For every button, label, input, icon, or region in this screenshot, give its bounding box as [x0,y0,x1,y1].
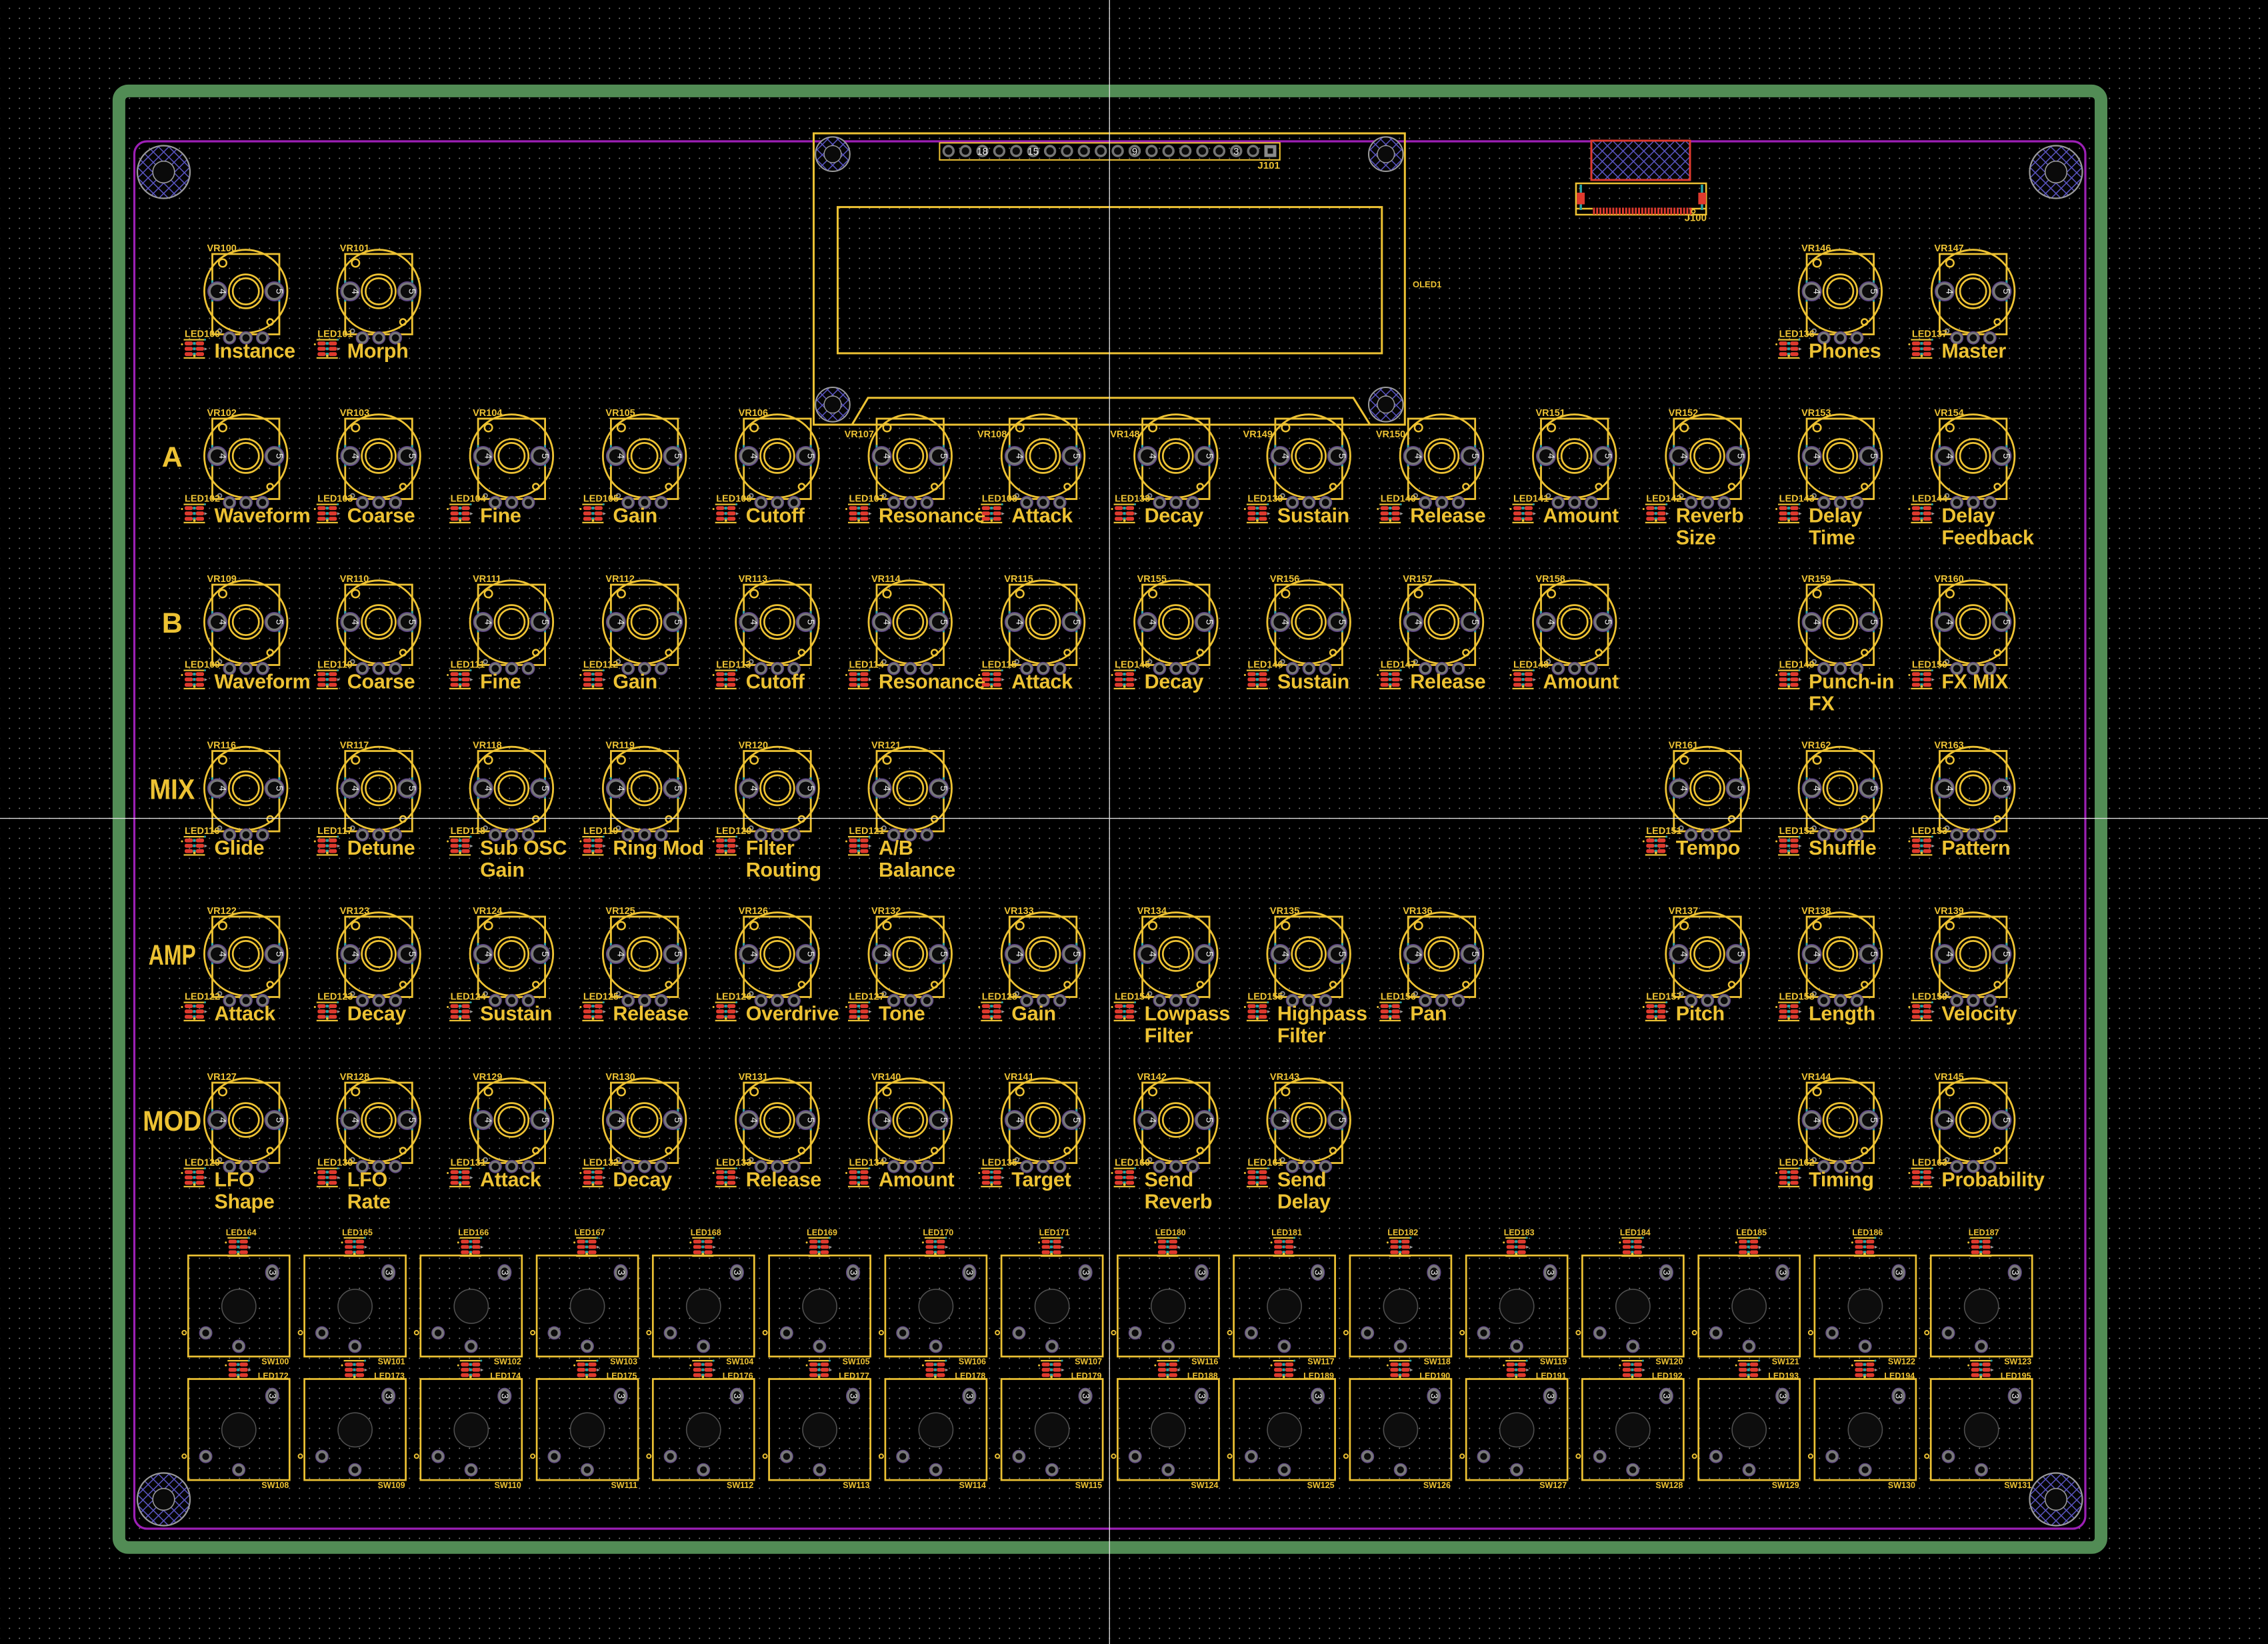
svg-text:VR157: VR157 [1403,574,1432,585]
svg-text:Timing: Timing [1809,1169,1874,1191]
svg-text:Coarse: Coarse [347,671,415,693]
svg-text:Decay: Decay [1145,671,1204,693]
svg-text:LED132: LED132 [583,1158,619,1169]
svg-text:Morph: Morph [347,340,409,363]
svg-text:LED185: LED185 [1736,1228,1767,1237]
svg-text:VR132: VR132 [871,906,901,917]
svg-text:LED142: LED142 [1646,494,1681,505]
svg-text:LED121: LED121 [849,826,885,837]
svg-text:Attack: Attack [215,1003,276,1025]
svg-text:LED118: LED118 [451,826,485,837]
svg-text:LED116: LED116 [185,826,219,837]
svg-text:Decay: Decay [347,1003,407,1025]
svg-text:Cutoff: Cutoff [746,505,805,527]
svg-text:J101: J101 [1257,160,1279,171]
svg-text:LED171: LED171 [1039,1228,1070,1237]
svg-text:SW113: SW113 [843,1481,869,1490]
svg-text:Attack: Attack [1011,671,1073,693]
svg-text:LED112: LED112 [583,660,618,671]
svg-text:VR108: VR108 [977,429,1007,440]
svg-text:VR143: VR143 [1270,1072,1299,1083]
svg-text:LED133: LED133 [716,1158,751,1169]
svg-text:VR138: VR138 [1801,906,1831,917]
svg-text:SW114: SW114 [959,1481,986,1490]
svg-text:LED155: LED155 [1247,992,1283,1003]
svg-text:Sustain: Sustain [1277,671,1349,693]
svg-text:SW103: SW103 [610,1357,637,1367]
svg-text:Pattern: Pattern [1941,837,2010,859]
svg-text:LED114: LED114 [849,660,884,671]
svg-text:VR113: VR113 [739,574,768,585]
svg-text:VR146: VR146 [1801,243,1831,254]
svg-text:LED153: LED153 [1912,826,1947,837]
svg-text:3: 3 [1233,146,1239,157]
svg-text:SW101: SW101 [378,1357,405,1367]
svg-text:Release: Release [613,1003,688,1025]
svg-text:Delay: Delay [1277,1191,1331,1213]
svg-text:LED115: LED115 [982,660,1017,671]
svg-text:Highpass: Highpass [1277,1003,1367,1025]
svg-text:Gain: Gain [613,671,657,693]
svg-text:LED124: LED124 [451,992,486,1003]
svg-text:Release: Release [1410,671,1485,693]
svg-text:LED128: LED128 [982,992,1017,1003]
svg-text:A/B: A/B [879,837,913,859]
svg-text:SW116: SW116 [1191,1357,1218,1367]
svg-text:VR158: VR158 [1536,574,1565,585]
svg-text:Cutoff: Cutoff [746,671,805,693]
svg-text:J100: J100 [1685,213,1707,224]
svg-text:SW105: SW105 [843,1357,870,1367]
svg-text:LED138: LED138 [1115,494,1150,505]
svg-text:SW130: SW130 [1888,1481,1915,1490]
svg-text:LED146: LED146 [1247,660,1283,671]
svg-text:VR101: VR101 [340,243,369,254]
svg-text:SW115: SW115 [1075,1481,1102,1490]
svg-text:VR147: VR147 [1934,243,1963,254]
svg-text:AMP: AMP [149,939,196,971]
svg-text:LED105: LED105 [583,494,619,505]
svg-text:LED123: LED123 [317,992,353,1003]
svg-text:Time: Time [1809,527,1855,549]
svg-text:VR142: VR142 [1137,1072,1167,1083]
svg-text:SW106: SW106 [959,1357,986,1367]
svg-text:Instance: Instance [215,340,295,363]
svg-text:Waveform: Waveform [215,505,311,527]
svg-text:Filter: Filter [746,837,795,859]
svg-text:LED113: LED113 [716,660,751,671]
svg-text:Filter: Filter [1277,1025,1326,1047]
svg-text:LED162: LED162 [1779,1158,1815,1169]
svg-text:LED154: LED154 [1115,992,1150,1003]
svg-text:VR152: VR152 [1669,408,1698,419]
svg-text:Attack: Attack [480,1169,541,1191]
svg-text:SW121: SW121 [1772,1357,1799,1367]
svg-text:VR125: VR125 [605,906,635,917]
svg-text:VR127: VR127 [207,1072,237,1083]
svg-text:SW117: SW117 [1307,1357,1334,1367]
svg-text:Detune: Detune [347,837,415,859]
svg-text:Master: Master [1941,340,2006,363]
svg-text:LED186: LED186 [1852,1228,1883,1237]
svg-text:LED165: LED165 [342,1228,373,1237]
svg-text:Coarse: Coarse [347,505,415,527]
svg-text:LED137: LED137 [1912,329,1947,340]
svg-text:SW127: SW127 [1539,1481,1567,1490]
svg-text:LED119: LED119 [583,826,618,837]
svg-text:LED103: LED103 [317,494,353,505]
svg-text:VR155: VR155 [1137,574,1167,585]
svg-text:VR116: VR116 [207,741,237,751]
svg-text:Gain: Gain [1011,1003,1056,1025]
svg-text:VR124: VR124 [473,906,502,917]
svg-text:VR134: VR134 [1137,906,1167,917]
svg-text:LED160: LED160 [1115,1158,1150,1169]
svg-text:Sustain: Sustain [1277,505,1349,527]
svg-text:A: A [162,441,183,473]
svg-text:VR110: VR110 [340,574,369,585]
svg-text:LED149: LED149 [1779,660,1815,671]
svg-text:LED139: LED139 [1247,494,1283,505]
svg-text:Gain: Gain [480,859,525,881]
svg-text:LED101: LED101 [317,329,353,340]
svg-text:VR133: VR133 [1004,906,1033,917]
svg-text:LED122: LED122 [185,992,220,1003]
svg-text:LED164: LED164 [226,1228,257,1237]
svg-text:LED100: LED100 [185,329,220,340]
svg-text:OLED1: OLED1 [1413,279,1441,289]
svg-text:LED148: LED148 [1513,660,1549,671]
svg-text:VR161: VR161 [1669,741,1698,751]
svg-text:LED166: LED166 [458,1228,489,1237]
svg-text:FX: FX [1809,693,1835,715]
svg-text:LED110: LED110 [317,660,352,671]
svg-text:LED117: LED117 [317,826,352,837]
svg-text:LED156: LED156 [1381,992,1416,1003]
svg-text:Decay: Decay [613,1169,672,1191]
svg-text:SW131: SW131 [2004,1481,2031,1490]
svg-text:Lowpass: Lowpass [1145,1003,1230,1025]
svg-text:SW122: SW122 [1888,1357,1915,1367]
svg-text:LED170: LED170 [923,1228,953,1237]
svg-text:VR145: VR145 [1934,1072,1963,1083]
svg-text:VR144: VR144 [1801,1072,1831,1083]
svg-text:VR111: VR111 [473,574,501,585]
svg-text:LED145: LED145 [1115,660,1150,671]
svg-text:LED144: LED144 [1912,494,1947,505]
svg-text:Tone: Tone [879,1003,925,1025]
svg-text:Routing: Routing [746,859,821,881]
svg-text:SW111: SW111 [611,1481,637,1490]
svg-text:B: B [162,607,183,639]
svg-text:SW128: SW128 [1655,1481,1683,1490]
svg-text:SW118: SW118 [1424,1357,1451,1367]
svg-text:Release: Release [1410,505,1485,527]
svg-text:Resonance: Resonance [879,505,985,527]
svg-text:Shuffle: Shuffle [1809,837,1876,859]
svg-text:Amount: Amount [1543,505,1619,527]
svg-text:VR154: VR154 [1934,408,1963,419]
svg-text:LED168: LED168 [691,1228,721,1237]
svg-text:VR103: VR103 [340,408,369,419]
svg-text:VR114: VR114 [871,574,901,585]
svg-text:SW104: SW104 [726,1357,753,1367]
svg-text:Balance: Balance [879,859,955,881]
svg-text:LED135: LED135 [982,1158,1017,1169]
svg-text:Release: Release [746,1169,821,1191]
svg-text:VR139: VR139 [1934,906,1963,917]
svg-text:VR163: VR163 [1934,741,1963,751]
svg-text:VR100: VR100 [207,243,237,254]
svg-text:LED151: LED151 [1646,826,1681,837]
svg-text:VR102: VR102 [207,408,237,419]
svg-text:VR156: VR156 [1270,574,1299,585]
svg-text:Reverb: Reverb [1145,1191,1213,1213]
svg-text:Filter: Filter [1145,1025,1193,1047]
svg-text:LED184: LED184 [1620,1228,1651,1237]
svg-text:Pitch: Pitch [1676,1003,1725,1025]
svg-text:LFO: LFO [347,1169,387,1191]
svg-text:LED159: LED159 [1912,992,1947,1003]
svg-text:Amount: Amount [879,1169,955,1191]
svg-text:LED152: LED152 [1779,826,1815,837]
svg-text:VR159: VR159 [1801,574,1831,585]
svg-text:LED102: LED102 [185,494,220,505]
svg-text:VR126: VR126 [739,906,768,917]
svg-text:SW126: SW126 [1423,1481,1451,1490]
svg-text:SW109: SW109 [378,1481,405,1490]
svg-text:Feedback: Feedback [1941,527,2034,549]
svg-text:VR151: VR151 [1536,408,1565,419]
svg-text:SW123: SW123 [2004,1357,2031,1367]
svg-text:Probability: Probability [1941,1169,2045,1191]
svg-text:Phones: Phones [1809,340,1881,363]
svg-text:Decay: Decay [1145,505,1204,527]
svg-text:Amount: Amount [1543,671,1619,693]
svg-text:VR123: VR123 [340,906,369,917]
svg-text:LED106: LED106 [716,494,751,505]
svg-text:VR141: VR141 [1004,1072,1033,1083]
svg-text:VR160: VR160 [1934,574,1963,585]
svg-text:Reverb: Reverb [1676,505,1744,527]
svg-text:VR136: VR136 [1403,906,1432,917]
svg-text:VR135: VR135 [1270,906,1299,917]
svg-text:VR150: VR150 [1376,429,1405,440]
svg-text:LED157: LED157 [1646,992,1681,1003]
svg-text:Sustain: Sustain [480,1003,552,1025]
svg-text:Target: Target [1011,1169,1071,1191]
svg-text:Send: Send [1145,1169,1193,1191]
svg-text:LED181: LED181 [1271,1228,1302,1237]
svg-text:LED131: LED131 [451,1158,486,1169]
svg-text:LED108: LED108 [982,494,1017,505]
svg-text:VR117: VR117 [340,741,369,751]
svg-text:Length: Length [1809,1003,1875,1025]
svg-text:LED187: LED187 [1969,1228,1999,1237]
svg-text:VR148: VR148 [1110,429,1139,440]
svg-text:LED163: LED163 [1912,1158,1947,1169]
svg-text:VR105: VR105 [605,408,635,419]
svg-text:VR120: VR120 [739,741,768,751]
svg-text:LED107: LED107 [849,494,885,505]
svg-text:VR107: VR107 [845,429,874,440]
svg-text:LED130: LED130 [317,1158,353,1169]
svg-text:VR109: VR109 [207,574,237,585]
svg-text:Delay: Delay [1941,505,1995,527]
svg-text:LED183: LED183 [1504,1228,1535,1237]
svg-text:VR106: VR106 [739,408,768,419]
svg-text:Punch-in: Punch-in [1809,671,1894,693]
svg-text:FX MIX: FX MIX [1941,671,2009,693]
svg-text:LED120: LED120 [716,826,751,837]
svg-text:15: 15 [1027,146,1039,157]
svg-text:LED158: LED158 [1779,992,1815,1003]
svg-text:Fine: Fine [480,505,521,527]
svg-text:LED104: LED104 [451,494,486,505]
svg-text:SW102: SW102 [494,1357,521,1367]
svg-text:VR115: VR115 [1004,574,1033,585]
svg-text:VR129: VR129 [473,1072,502,1083]
svg-text:VR104: VR104 [473,408,502,419]
svg-text:9: 9 [1132,146,1137,157]
svg-text:Size: Size [1676,527,1716,549]
svg-text:MIX: MIX [149,773,195,805]
svg-text:VR149: VR149 [1243,429,1273,440]
svg-text:VR118: VR118 [473,741,502,751]
svg-text:Sub OSC: Sub OSC [480,837,567,859]
svg-text:VR140: VR140 [871,1072,901,1083]
svg-text:LED126: LED126 [716,992,751,1003]
svg-text:Rate: Rate [347,1191,391,1213]
svg-text:VR131: VR131 [739,1072,768,1083]
svg-text:LED161: LED161 [1247,1158,1283,1169]
svg-text:LED167: LED167 [575,1228,605,1237]
svg-text:LED140: LED140 [1381,494,1416,505]
svg-text:Delay: Delay [1809,505,1862,527]
svg-text:SW119: SW119 [1540,1357,1567,1367]
svg-text:SW108: SW108 [261,1481,289,1490]
svg-text:Resonance: Resonance [879,671,985,693]
svg-text:LED182: LED182 [1387,1228,1418,1237]
svg-text:LED136: LED136 [1779,329,1815,340]
svg-text:SW125: SW125 [1307,1481,1335,1490]
svg-text:VR137: VR137 [1669,906,1698,917]
svg-text:VR122: VR122 [207,906,237,917]
svg-text:Pan: Pan [1410,1003,1447,1025]
svg-text:VR130: VR130 [605,1072,635,1083]
svg-text:LED147: LED147 [1381,660,1416,671]
svg-text:LED129: LED129 [185,1158,220,1169]
svg-text:SW120: SW120 [1655,1357,1683,1367]
svg-text:SW129: SW129 [1772,1481,1799,1490]
svg-text:LED134: LED134 [849,1158,885,1169]
svg-text:SW124: SW124 [1191,1481,1218,1490]
svg-text:Overdrive: Overdrive [746,1003,839,1025]
svg-text:18: 18 [977,146,988,157]
svg-text:Velocity: Velocity [1941,1003,2017,1025]
svg-text:LED127: LED127 [849,992,885,1003]
svg-text:VR119: VR119 [605,741,635,751]
svg-text:LED111: LED111 [451,660,485,671]
svg-text:SW112: SW112 [727,1481,753,1490]
svg-text:LFO: LFO [215,1169,255,1191]
svg-text:Gain: Gain [613,505,657,527]
svg-text:Fine: Fine [480,671,521,693]
svg-text:LED180: LED180 [1155,1228,1186,1237]
svg-text:LED143: LED143 [1779,494,1815,505]
svg-text:Tempo: Tempo [1676,837,1740,859]
svg-text:MOD: MOD [143,1105,201,1137]
svg-text:LED141: LED141 [1513,494,1549,505]
svg-text:Attack: Attack [1011,505,1073,527]
svg-text:SW107: SW107 [1075,1357,1102,1367]
svg-text:Glide: Glide [215,837,265,859]
svg-text:SW100: SW100 [261,1357,289,1367]
svg-text:LED169: LED169 [807,1228,837,1237]
svg-text:LED125: LED125 [583,992,619,1003]
svg-text:LED150: LED150 [1912,660,1947,671]
svg-text:VR112: VR112 [605,574,635,585]
svg-text:VR162: VR162 [1801,741,1831,751]
svg-text:VR121: VR121 [871,741,901,751]
svg-text:SW110: SW110 [494,1481,521,1490]
svg-text:Ring Mod: Ring Mod [613,837,704,859]
svg-text:Send: Send [1277,1169,1326,1191]
svg-text:LED109: LED109 [185,660,220,671]
svg-text:VR153: VR153 [1801,408,1831,419]
svg-text:Waveform: Waveform [215,671,311,693]
svg-text:Shape: Shape [215,1191,275,1213]
svg-text:VR128: VR128 [340,1072,369,1083]
